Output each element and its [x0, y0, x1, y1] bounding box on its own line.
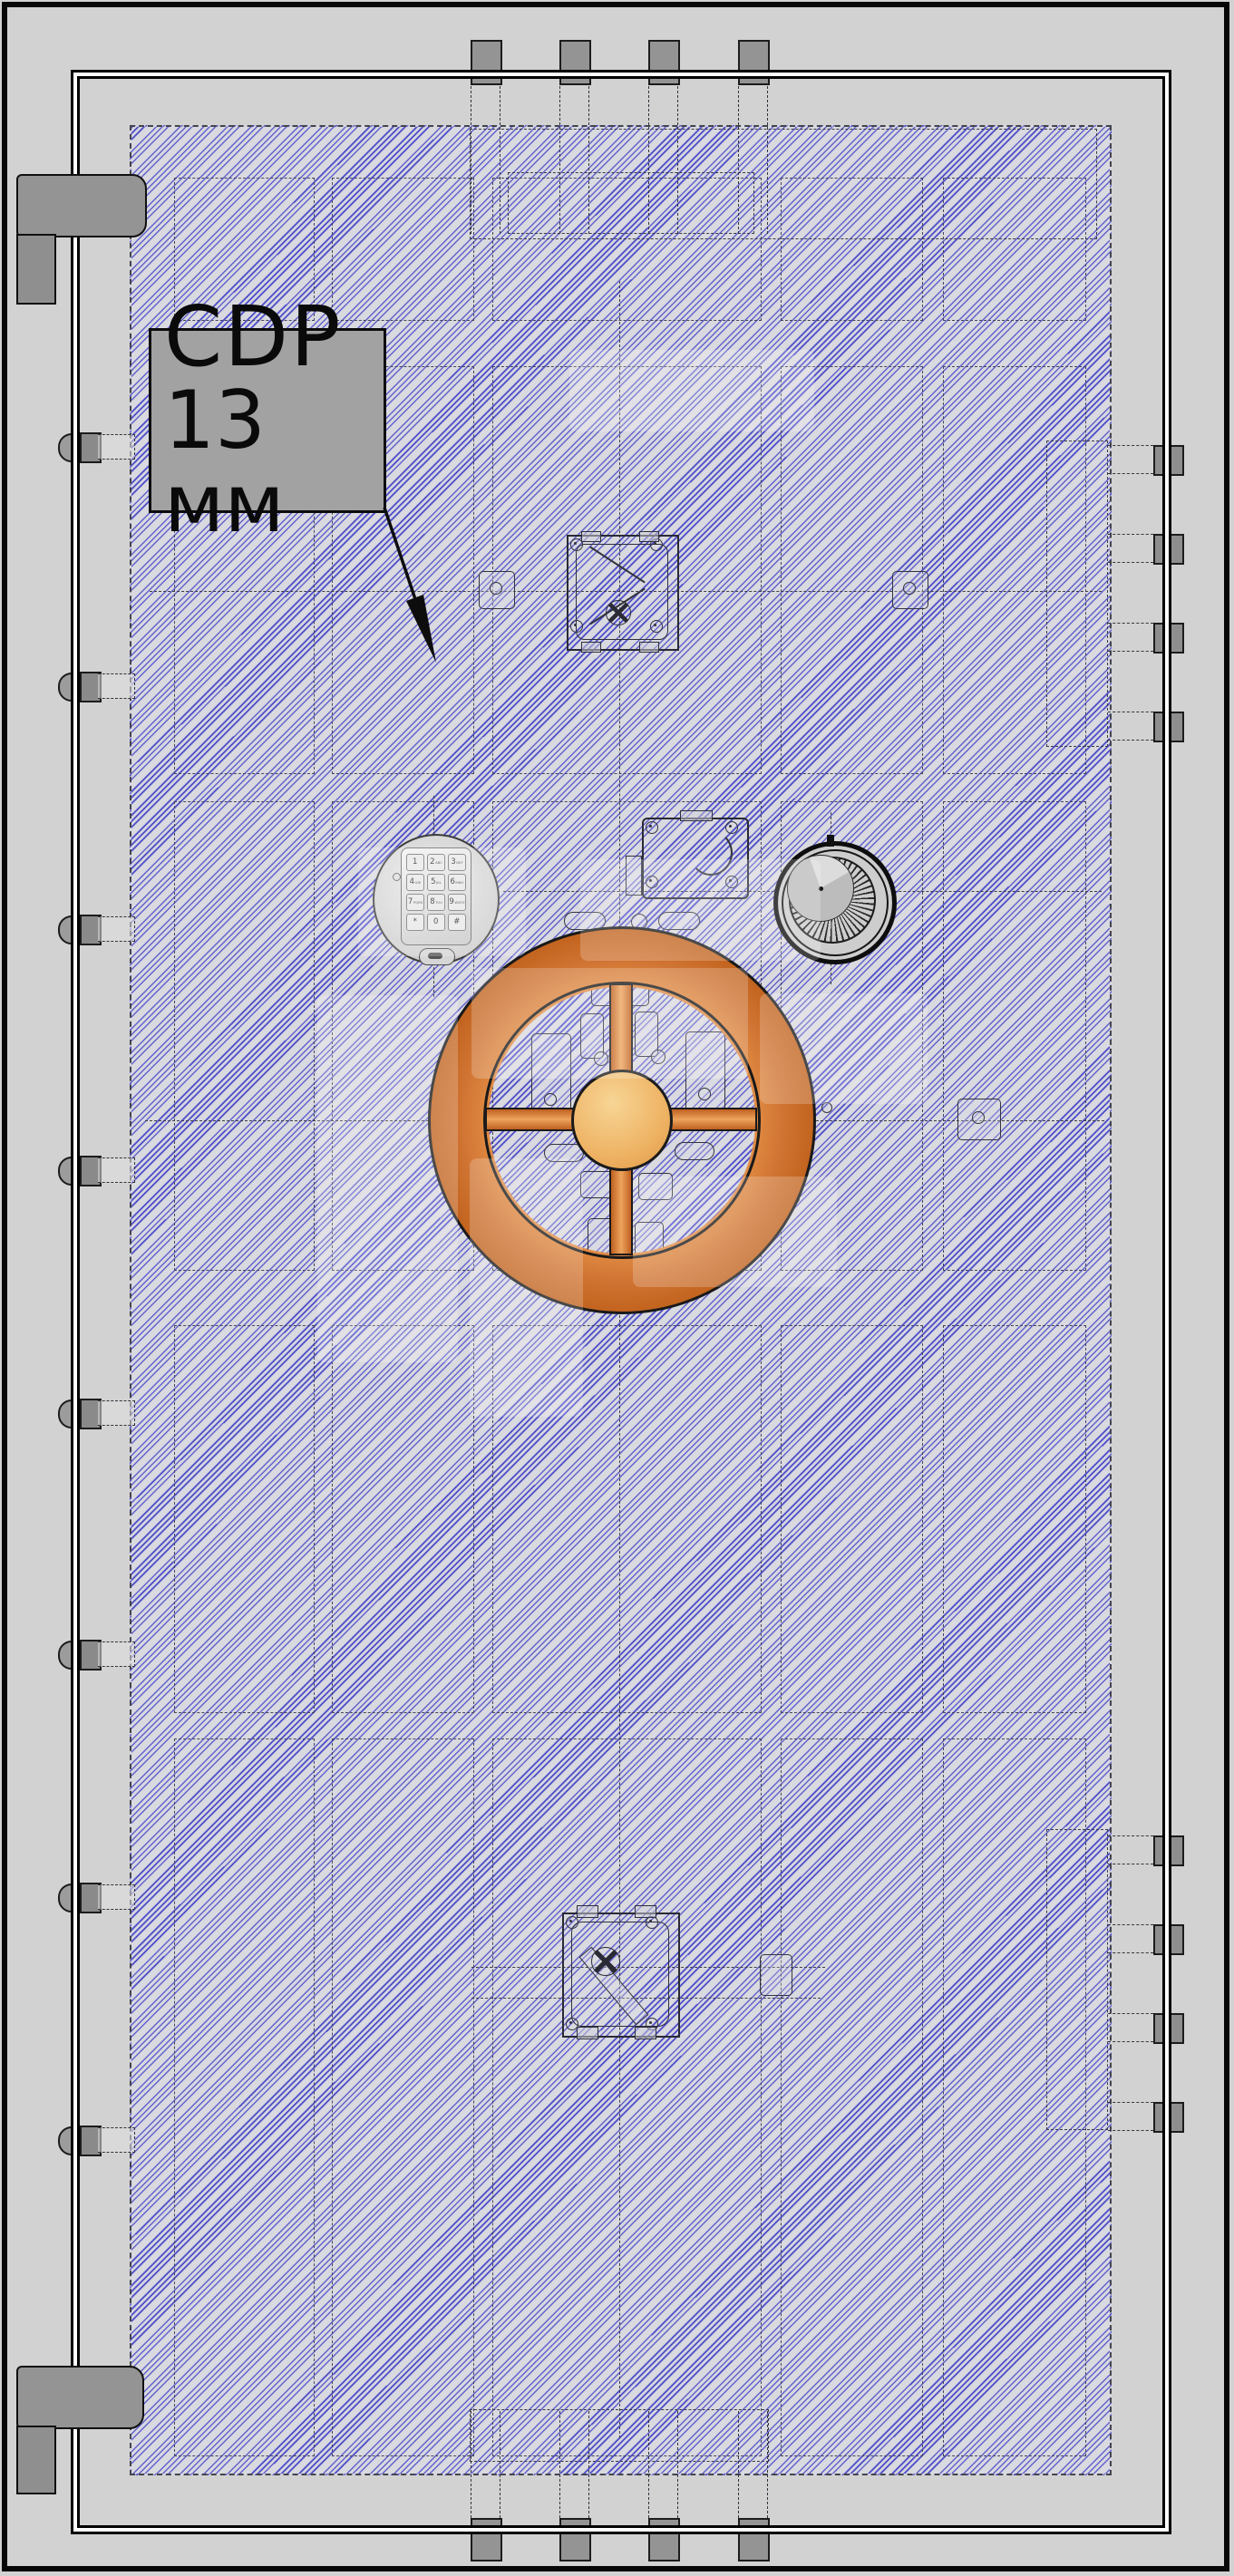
dial-index-mark: [827, 835, 834, 847]
panel-outline: [781, 1738, 923, 2456]
left-bolt-shaft: [98, 1157, 135, 1183]
top-hinge-arm: [16, 234, 56, 305]
top-hinge: [16, 174, 147, 237]
panel-outline: [332, 1325, 474, 1713]
right-locking-bolt: [1153, 2013, 1184, 2044]
keypad-keys: 12ABC3DEF4GHI5JKL6MNO7PQRS8TUV9WXYZ*0#: [406, 854, 466, 931]
mount-tab: [639, 642, 659, 653]
panel-outline: [943, 801, 1086, 1271]
left-bolt-shaft: [98, 1641, 135, 1667]
bolt-carrier: [470, 2409, 769, 2462]
fitting-outline: [760, 1954, 792, 1996]
dial-face: [787, 855, 854, 922]
top-locking-bolt: [648, 40, 680, 85]
left-bolt-shaft: [98, 916, 135, 942]
upper-box-gear-icon: [606, 600, 631, 625]
right-locking-bolt: [1153, 445, 1184, 476]
bottom-hinge-arm: [16, 2426, 56, 2494]
bolt-carrier: [1046, 1829, 1108, 2130]
bottom-bolt-guide: [559, 2411, 589, 2518]
fitting-circle: [903, 582, 916, 595]
right-bolt-guide: [1108, 1924, 1153, 1953]
right-bolt-guide: [1108, 445, 1153, 474]
bottom-locking-bolt: [559, 2518, 591, 2561]
panel-outline: [174, 1325, 315, 1713]
panel-outline: [943, 1325, 1086, 1713]
panel-outline: [492, 1325, 762, 1713]
right-bolt-guide: [1108, 712, 1153, 741]
top-bolt-guide: [471, 82, 500, 234]
mount-tab: [635, 1905, 656, 1918]
panel-outline: [174, 801, 315, 1271]
right-bolt-guide: [1108, 623, 1153, 652]
right-bolt-guide: [1108, 2013, 1153, 2042]
dial-center-dot: [819, 886, 823, 891]
top-bolt-guide: [738, 82, 768, 234]
right-locking-bolt: [1153, 712, 1184, 742]
bottom-locking-bolt: [648, 2518, 680, 2561]
screw-icon: [646, 876, 658, 888]
screw-icon: [566, 1916, 578, 1929]
panel-outline: [174, 1738, 315, 2456]
mount-tab: [680, 810, 713, 821]
keypad-key: 5JKL: [427, 874, 445, 891]
keypad-key: 1: [406, 854, 424, 871]
bottom-bolt-guide: [471, 2411, 500, 2518]
keypad-key: 4GHI: [406, 874, 424, 891]
lower-box-gear-icon: [591, 1947, 620, 1976]
callout-material: CDP: [164, 295, 384, 379]
right-locking-bolt: [1153, 534, 1184, 565]
panel-outline: [492, 1738, 762, 2456]
combination-dial: [773, 841, 897, 964]
bottom-locking-bolt: [738, 2518, 770, 2561]
bottom-hinge: [16, 2366, 144, 2429]
right-locking-bolt: [1153, 2102, 1184, 2133]
bottom-bolt-guide: [648, 2411, 678, 2518]
top-bolt-guide: [559, 82, 589, 234]
keypad-key: 0: [427, 914, 445, 931]
keypad-key: 7PQRS: [406, 894, 424, 911]
lock-cam-arc: [689, 830, 733, 876]
keypad-led: [393, 873, 401, 881]
thickness-callout: CDP 13 мм: [149, 328, 386, 513]
keypad-key: 9WXYZ: [448, 894, 466, 911]
left-bolt-shaft: [98, 673, 135, 699]
keypad-key: 6MNO: [448, 874, 466, 891]
top-locking-bolt: [559, 40, 591, 85]
right-locking-bolt: [1153, 1835, 1184, 1866]
screw-icon: [650, 620, 663, 633]
screw-icon: [570, 620, 583, 633]
panel-outline: [332, 1738, 474, 2456]
top-bolt-guide: [648, 82, 678, 234]
right-locking-bolt: [1153, 1924, 1184, 1955]
callout-thickness: 13 мм: [164, 379, 384, 547]
top-locking-bolt: [738, 40, 770, 85]
fitting-circle: [972, 1111, 985, 1124]
screw-icon: [646, 821, 658, 834]
right-bolt-guide: [1108, 2102, 1153, 2131]
left-bolt-shaft: [98, 2127, 135, 2153]
keypad-key: 8TUV: [427, 894, 445, 911]
left-bolt-shaft: [98, 1400, 135, 1426]
keypad-key: 2ABC: [427, 854, 445, 871]
handwheel-hub: [571, 1070, 673, 1171]
mount-tab: [581, 531, 601, 542]
mount-tab: [581, 642, 601, 653]
panel-outline: [781, 366, 923, 774]
lock-side-plate: [626, 856, 642, 896]
mount-tab: [577, 2027, 598, 2039]
bottom-locking-bolt: [471, 2518, 502, 2561]
mount-tab: [639, 531, 659, 542]
mount-tab: [577, 1905, 598, 1918]
top-locking-bolt: [471, 40, 502, 85]
keypad-key-cover: [419, 948, 455, 965]
keypad-key: *: [406, 914, 424, 931]
vault-door-drawing: 12ABC3DEF4GHI5JKL6MNO7PQRS8TUV9WXYZ*0# C…: [0, 0, 1234, 2576]
right-locking-bolt: [1153, 623, 1184, 654]
screw-icon: [725, 876, 738, 888]
bolt-carrier: [1046, 441, 1108, 747]
keypad-key: 3DEF: [448, 854, 466, 871]
bottom-bolt-guide: [738, 2411, 768, 2518]
left-bolt-shaft: [98, 1884, 135, 1910]
lower-lock-box-inner: [571, 1922, 669, 2027]
panel-outline: [781, 1325, 923, 1713]
mount-tab: [635, 2027, 656, 2039]
left-bolt-shaft: [98, 434, 135, 460]
screw-icon: [725, 821, 738, 834]
fitting-circle: [490, 582, 502, 595]
keypad-plate: 12ABC3DEF4GHI5JKL6MNO7PQRS8TUV9WXYZ*0#: [401, 847, 471, 945]
fitting-outline: [658, 912, 700, 930]
right-bolt-guide: [1108, 1835, 1153, 1864]
keypad-key: #: [448, 914, 466, 931]
right-bolt-guide: [1108, 534, 1153, 563]
fitting-circle: [821, 1102, 832, 1113]
screw-icon: [646, 1916, 658, 1929]
electronic-keypad-lock: 12ABC3DEF4GHI5JKL6MNO7PQRS8TUV9WXYZ*0#: [373, 834, 500, 964]
